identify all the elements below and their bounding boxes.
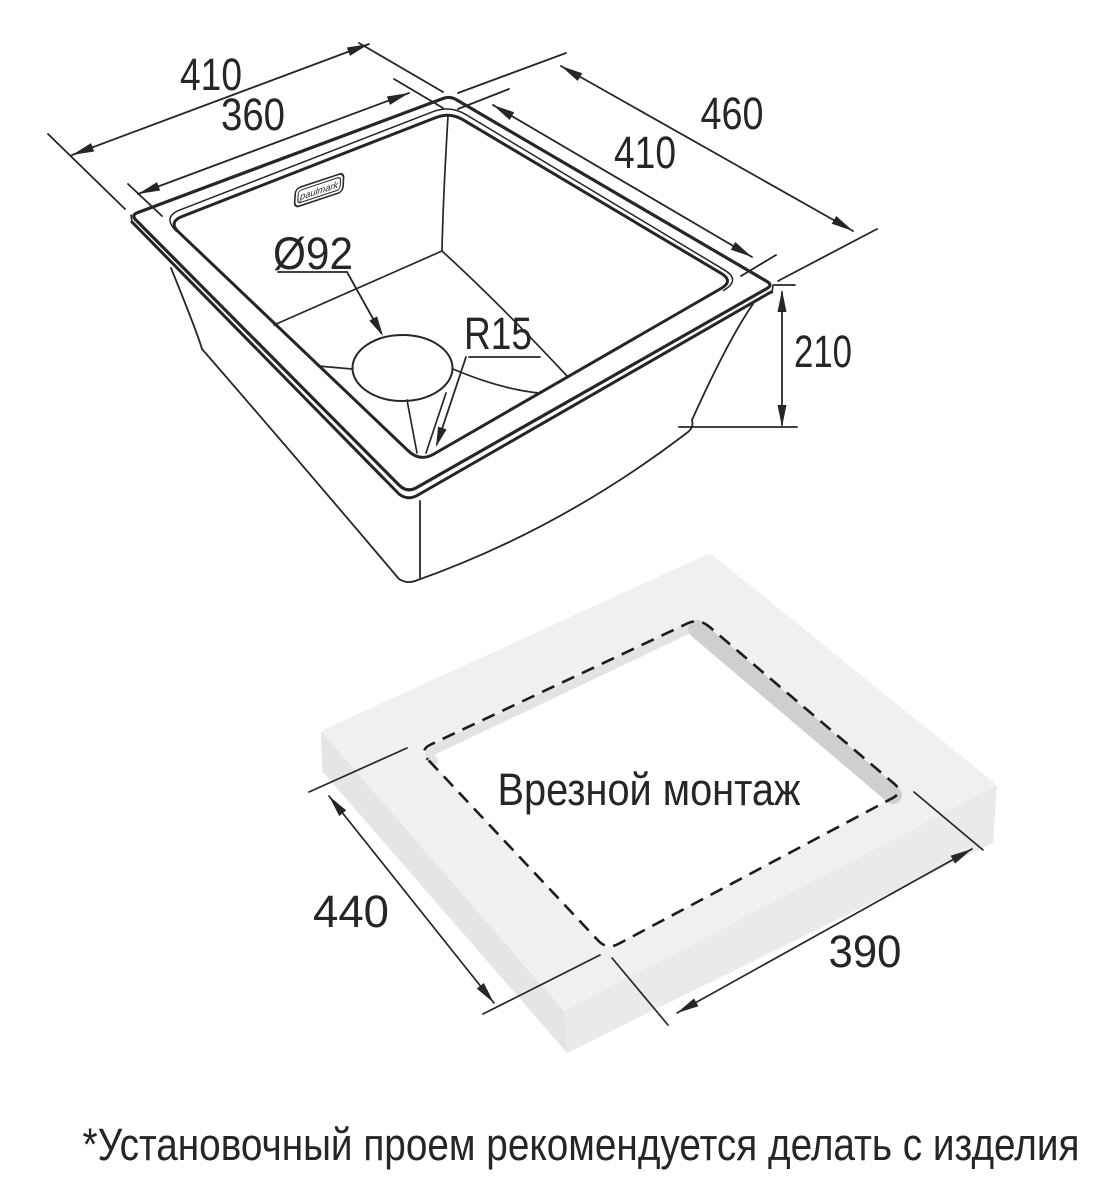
svg-text:390: 390 bbox=[829, 926, 902, 977]
svg-text:R15: R15 bbox=[464, 308, 532, 359]
svg-text:*Установочный проем рекомендуе: *Установочный проем рекомендуется делать… bbox=[83, 1119, 1080, 1170]
svg-text:Врезной монтаж: Врезной монтаж bbox=[498, 764, 801, 815]
svg-text:Ø92: Ø92 bbox=[273, 228, 353, 279]
svg-text:360: 360 bbox=[221, 89, 285, 140]
svg-text:460: 460 bbox=[701, 88, 764, 139]
svg-text:440: 440 bbox=[313, 886, 389, 937]
svg-text:210: 210 bbox=[794, 326, 852, 377]
svg-text:410: 410 bbox=[614, 127, 676, 178]
